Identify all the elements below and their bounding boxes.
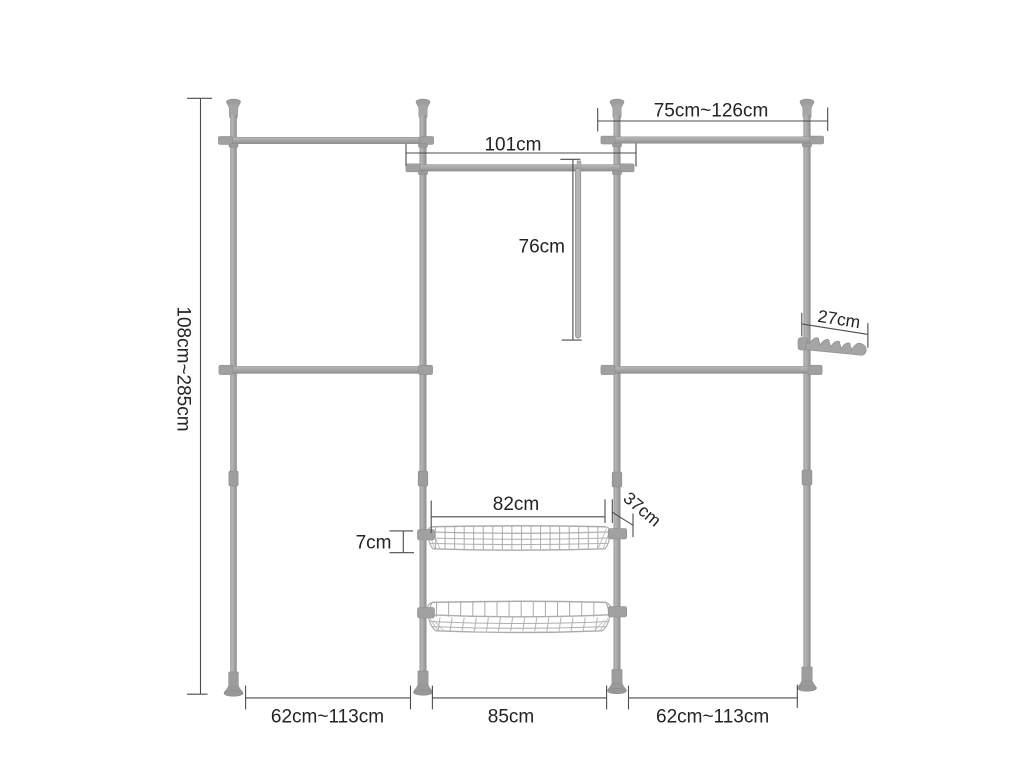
svg-text:82cm: 82cm — [493, 494, 539, 515]
svg-text:7cm: 7cm — [356, 533, 392, 554]
svg-text:85cm: 85cm — [488, 707, 534, 728]
svg-text:101cm: 101cm — [484, 135, 541, 156]
svg-text:62cm~113cm: 62cm~113cm — [271, 707, 384, 728]
svg-text:108cm~285cm: 108cm~285cm — [173, 306, 194, 431]
svg-text:62cm~113cm: 62cm~113cm — [656, 707, 769, 728]
svg-text:76cm: 76cm — [519, 237, 565, 258]
svg-text:75cm~126cm: 75cm~126cm — [654, 101, 769, 122]
